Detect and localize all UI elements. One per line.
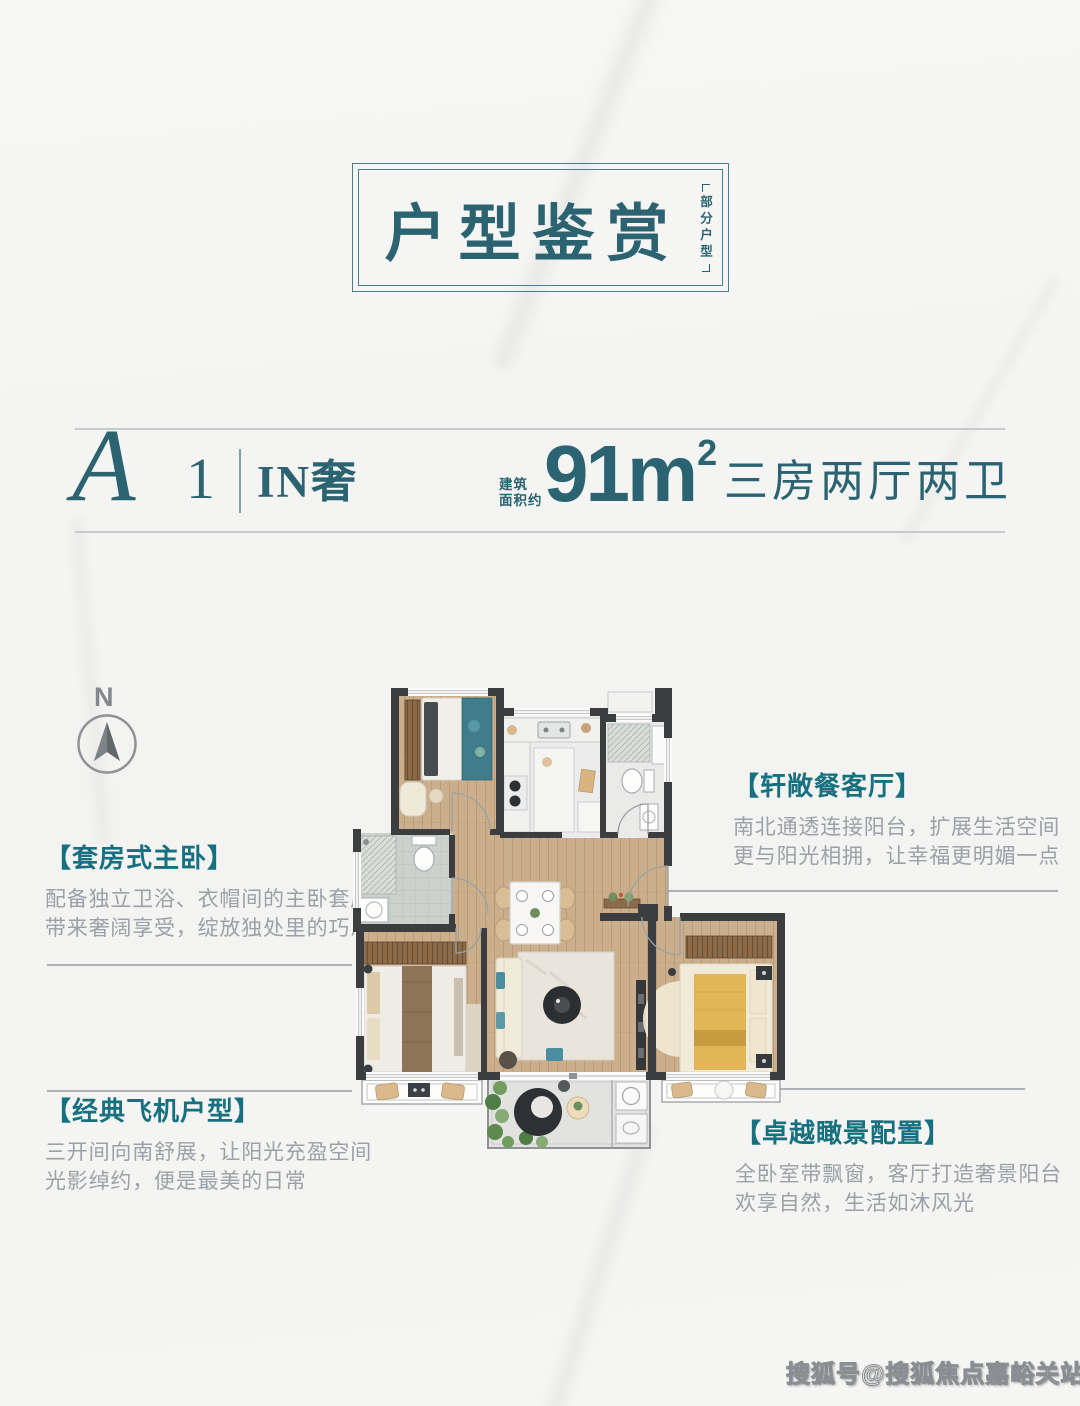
leader-line-master (47, 964, 352, 966)
area-label-line1: 建筑 (499, 477, 543, 493)
compass-icon (76, 713, 138, 775)
callout-classic-layout: 【经典飞机户型】 三开间向南舒展，让阳光充盈空间 光影绰约，便是最美的日常 (45, 1096, 385, 1196)
callout-line: 欢享自然，生活如沐风光 (735, 1189, 1075, 1218)
compass-north-label: N (94, 682, 114, 713)
leader-line-classic (47, 1090, 352, 1092)
watermark: 搜狐号@搜狐焦点嘉峪关站 (786, 1354, 1080, 1389)
callout-master-suite: 【套房式主卧】 配备独立卫浴、衣帽间的主卧套房 带来奢阔享受，绽放独处里的巧思 (45, 843, 385, 943)
unit-name: IN奢 (257, 457, 358, 507)
balcony (485, 1078, 650, 1148)
header-rule-top (75, 428, 1005, 430)
poster-canvas: 户型鉴赏 部分户型 A 1 IN奢 建筑 面积约 91m2 三房两厅两卫 N 【… (0, 0, 1080, 1406)
unit-code-letter: A (72, 414, 136, 518)
floor-plan (350, 682, 790, 1182)
callout-title: 【套房式主卧】 (45, 843, 385, 873)
bay-window-master (362, 1080, 482, 1104)
title-side-note-text: 部分户型 (696, 195, 715, 261)
callout-line: 带来奢阔享受，绽放独处里的巧思 (45, 914, 385, 943)
page-title: 户型鉴赏 (372, 183, 708, 273)
title-side-note: 部分户型 (696, 184, 715, 272)
bracket-bottom-icon (702, 264, 710, 272)
rooms-summary: 三房两厅两卫 (724, 457, 1012, 507)
unit-code-number: 1 (186, 450, 215, 508)
bay-window-southeast (662, 1080, 780, 1102)
area-label-line2: 面积约 (499, 493, 543, 509)
master-bedroom (362, 942, 484, 1074)
callout-title: 【经典飞机户型】 (45, 1096, 385, 1126)
area-label: 建筑 面积约 (499, 477, 543, 508)
marble-vein (835, 235, 1080, 585)
area-value: 91m2 (544, 428, 717, 535)
callout-line: 配备独立卫浴、衣帽间的主卧套房 (45, 885, 385, 914)
callout-line: 光影绰约，便是最美的日常 (45, 1167, 385, 1196)
bracket-top-icon (702, 184, 710, 192)
area-superscript: 2 (697, 432, 717, 473)
callout-line: 三开间向南舒展，让阳光充盈空间 (45, 1138, 385, 1167)
marble-vein (0, 505, 209, 856)
kitchen (502, 718, 603, 832)
title-box: 户型鉴赏 部分户型 (352, 163, 729, 292)
header-rule-bottom (75, 531, 1005, 533)
unit-code-divider (239, 449, 241, 513)
